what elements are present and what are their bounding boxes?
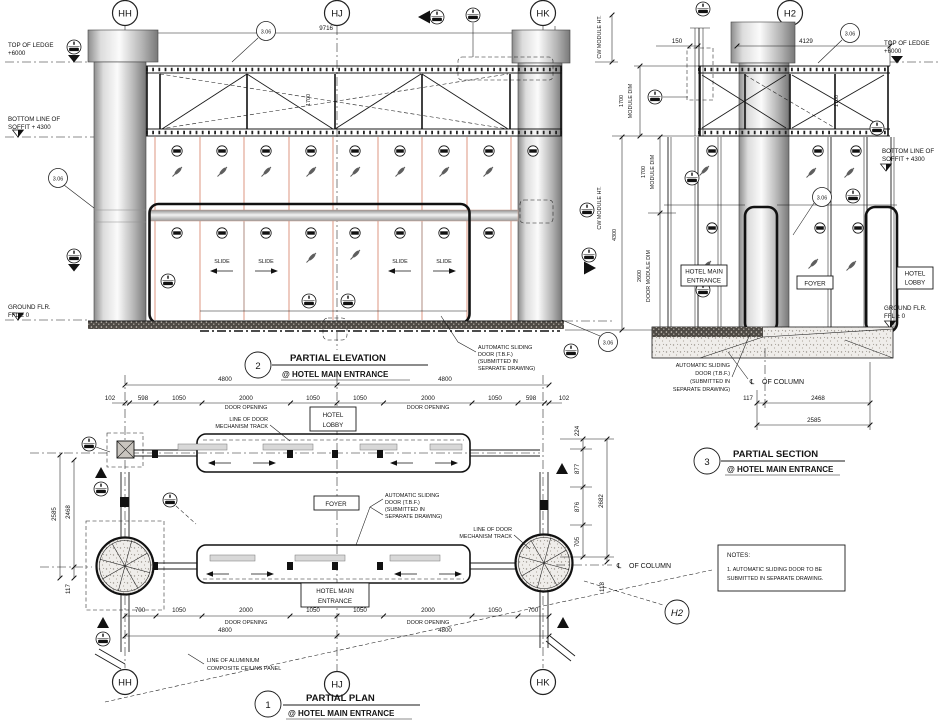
svg-text:2585: 2585: [51, 507, 58, 521]
svg-text:224: 224: [574, 425, 581, 436]
auto-door-note-plan: AUTOMATIC SLIDING DOOR (T.B.F.) (SUBMITT…: [356, 493, 442, 545]
svg-text:AUTOMATIC SLIDING: AUTOMATIC SLIDING: [385, 493, 439, 499]
curtain-wall-elevation: [150, 137, 538, 320]
upper-door-assembly: [130, 434, 540, 472]
svg-text:DOOR (T.B.F.): DOOR (T.B.F.): [478, 352, 513, 358]
keynote-bubble: [341, 294, 355, 308]
svg-text:4129: 4129: [799, 38, 813, 45]
svg-text:BOTTOM LINE OF: BOTTOM LINE OF: [8, 116, 60, 123]
svg-text:2468: 2468: [65, 505, 72, 519]
svg-text:3.06: 3.06: [845, 32, 856, 38]
svg-text:LINE OF DOOR: LINE OF DOOR: [229, 417, 268, 423]
svg-text:℄: ℄: [616, 563, 622, 570]
svg-text:SEPARATE DRAWING): SEPARATE DRAWING): [673, 387, 730, 393]
svg-text:LOBBY: LOBBY: [323, 422, 344, 429]
svg-text:HOTEL: HOTEL: [323, 412, 344, 419]
svg-text:H2: H2: [671, 608, 684, 619]
slide-label: SLIDE: [392, 259, 408, 265]
svg-text:700: 700: [135, 607, 146, 614]
svg-text:1050: 1050: [172, 607, 186, 614]
drawing-canvas: HH HJ HK 9716: [0, 0, 939, 720]
svg-text:2: 2: [255, 361, 260, 372]
notes-line-1: 1. AUTOMATIC SLIDING DOOR TO BE: [727, 567, 823, 573]
svg-text:150: 150: [672, 38, 683, 45]
plan-title: 1 PARTIAL PLAN @ HOTEL MAIN ENTRANCE: [255, 691, 420, 719]
svg-text:HOTEL MAIN: HOTEL MAIN: [685, 269, 723, 276]
dimension-9716: 9716: [123, 25, 558, 42]
svg-text:CW MODULE HT.: CW MODULE HT.: [597, 186, 603, 229]
svg-text:2468: 2468: [811, 395, 825, 402]
top-of-ledge-label: TOP OF LEDGE: [8, 42, 54, 49]
ground-section: [652, 327, 893, 358]
grid-label-hj: HJ: [331, 9, 343, 20]
truss-depth-dim: 1700: [306, 94, 312, 106]
partial-elevation-view: HH HJ HK 9716: [5, 1, 618, 381]
svg-text:PARTIAL PLAN: PARTIAL PLAN: [306, 693, 375, 704]
svg-text:COMPOSITE CEILING PANEL: COMPOSITE CEILING PANEL: [207, 666, 281, 672]
transom-band: [150, 210, 518, 221]
svg-text:HOTEL MAIN: HOTEL MAIN: [316, 588, 354, 595]
svg-text:1050: 1050: [488, 607, 502, 614]
module-dimension-stack: CW MODULE HT. 1700 MODULE DIM CW MODULE …: [565, 13, 700, 333]
grid-label-h2: H2: [784, 9, 796, 20]
svg-text:3.06: 3.06: [261, 30, 272, 36]
svg-text:OF COLUMN: OF COLUMN: [629, 563, 671, 570]
svg-text:2000: 2000: [239, 607, 253, 614]
svg-text:OF COLUMN: OF COLUMN: [762, 379, 804, 386]
keynote-bubble: [302, 294, 316, 308]
svg-text:1700: 1700: [641, 166, 647, 178]
svg-text:DOOR (T.B.F.): DOOR (T.B.F.): [385, 500, 420, 506]
svg-text:ENTRANCE: ENTRANCE: [318, 598, 352, 605]
svg-text:LOBBY: LOBBY: [905, 280, 926, 287]
svg-text:FOYER: FOYER: [804, 281, 826, 288]
svg-text:877: 877: [574, 463, 581, 474]
svg-text:DOOR MODULE DIM: DOOR MODULE DIM: [646, 249, 652, 302]
room-labels-section: HOTEL MAIN ENTRANCE FOYER HOTEL LOBBY: [681, 265, 933, 289]
svg-text:SOFFIT + 4300: SOFFIT + 4300: [882, 156, 925, 163]
svg-text:598: 598: [138, 395, 149, 402]
svg-text:HJ: HJ: [331, 680, 343, 691]
svg-text:AUTOMATIC SLIDING: AUTOMATIC SLIDING: [478, 345, 532, 351]
svg-text:118: 118: [599, 582, 606, 592]
svg-text:@ HOTEL MAIN ENTRANCE: @ HOTEL MAIN ENTRANCE: [727, 465, 834, 474]
svg-text:℄: ℄: [749, 379, 755, 386]
slide-label: SLIDE: [214, 259, 230, 265]
svg-text:CW MODULE HT.: CW MODULE HT.: [597, 15, 603, 58]
room-labels-plan: HOTEL LOBBY FOYER HOTEL MAIN ENTRANCE: [301, 407, 369, 607]
ground-line-elevation: [5, 320, 614, 331]
svg-text:MODULE DIM: MODULE DIM: [650, 154, 656, 189]
svg-text:SEPARATE DRAWING): SEPARATE DRAWING): [478, 366, 535, 372]
svg-text:FOYER: FOYER: [325, 501, 347, 508]
slide-arrow-left: [210, 268, 233, 274]
elevation-title: 2 PARTIAL ELEVATION @ HOTEL MAIN ENTRANC…: [245, 352, 428, 380]
svg-text:(SUBMITTED IN: (SUBMITTED IN: [690, 379, 730, 385]
svg-text:DOOR OPENING: DOOR OPENING: [407, 405, 450, 411]
svg-text:3.06: 3.06: [53, 177, 64, 183]
svg-text:1050: 1050: [172, 395, 186, 402]
section-title: 3 PARTIAL SECTION @ HOTEL MAIN ENTRANCE: [694, 448, 845, 475]
svg-text:HH: HH: [118, 678, 132, 689]
svg-text:DOOR (T.B.F.): DOOR (T.B.F.): [695, 371, 730, 377]
grid-label-hh: HH: [118, 9, 132, 20]
slide-label: SLIDE: [436, 259, 452, 265]
svg-text:4800: 4800: [218, 627, 232, 634]
svg-text:9716: 9716: [319, 25, 333, 32]
slide-arrow-left: [388, 268, 411, 274]
svg-text:2000: 2000: [421, 395, 435, 402]
slide-arrow-right: [255, 268, 278, 274]
svg-text:@ HOTEL MAIN ENTRANCE: @ HOTEL MAIN ENTRANCE: [288, 709, 395, 718]
svg-text:117: 117: [65, 584, 72, 594]
svg-text:4800: 4800: [218, 376, 232, 383]
svg-text:3.06: 3.06: [817, 196, 828, 202]
svg-text:4300: 4300: [612, 229, 618, 241]
svg-text:AUTOMATIC SLIDING: AUTOMATIC SLIDING: [676, 363, 730, 369]
svg-text:117: 117: [743, 395, 753, 402]
svg-text:DOOR OPENING: DOOR OPENING: [225, 405, 268, 411]
svg-text:LINE OF ALUMINIUM: LINE OF ALUMINIUM: [207, 658, 260, 664]
svg-text:1: 1: [265, 700, 270, 711]
svg-text:1050: 1050: [306, 395, 320, 402]
section-cut-flag-right: [584, 262, 596, 275]
track-note-lower: LINE OF DOOR MECHANISM TRACK: [459, 527, 530, 549]
plan-section-markers: [94, 463, 569, 646]
svg-text:3: 3: [704, 457, 709, 468]
svg-text:1700: 1700: [834, 95, 840, 107]
partial-section-view: H2 1700 150: [648, 1, 939, 476]
svg-text:2600: 2600: [637, 270, 643, 282]
svg-text:+6000: +6000: [884, 48, 902, 55]
slide-arrow-right: [433, 268, 456, 274]
svg-text:1050: 1050: [353, 607, 367, 614]
svg-text:DOOR OPENING: DOOR OPENING: [225, 620, 268, 626]
svg-text:TOP OF LEDGE: TOP OF LEDGE: [884, 40, 930, 47]
grid-label-hk: HK: [536, 9, 550, 20]
svg-text:DOOR OPENING: DOOR OPENING: [407, 620, 450, 626]
cad-drawing-sheet: HH HJ HK 9716: [0, 0, 939, 720]
svg-text:4800: 4800: [438, 627, 452, 634]
svg-text:HOTEL: HOTEL: [905, 271, 926, 278]
svg-text:2000: 2000: [421, 607, 435, 614]
svg-text:705: 705: [574, 536, 581, 547]
plan-corner-post: [82, 433, 143, 467]
truss-section: 1700: [698, 66, 890, 136]
svg-text:MECHANISM TRACK: MECHANISM TRACK: [215, 424, 268, 430]
svg-text:HK: HK: [536, 678, 550, 689]
svg-text:1050: 1050: [488, 395, 502, 402]
svg-text:102: 102: [105, 395, 116, 402]
svg-text:2682: 2682: [598, 494, 605, 508]
notes-box: NOTES: 1. AUTOMATIC SLIDING DOOR TO BE S…: [718, 545, 845, 591]
svg-text:BOTTOM LINE OF: BOTTOM LINE OF: [882, 148, 934, 155]
svg-text:PARTIAL ELEVATION: PARTIAL ELEVATION: [290, 353, 386, 364]
fastener-row-upper: [172, 146, 538, 156]
svg-text:ENTRANCE: ENTRANCE: [687, 278, 721, 285]
notes-heading: NOTES:: [727, 552, 750, 559]
svg-text:876: 876: [574, 501, 581, 512]
truss-elevation: 1700: [146, 66, 562, 136]
svg-text:GROUND FLR.: GROUND FLR.: [8, 304, 51, 311]
svg-text:MECHANISM TRACK: MECHANISM TRACK: [459, 534, 512, 540]
svg-text:1050: 1050: [353, 395, 367, 402]
svg-text:2000: 2000: [239, 395, 253, 402]
notes-line-2: SUBMITTED IN SEPARATE DRAWING.: [727, 576, 823, 582]
top-of-ledge-value: +6000: [8, 50, 26, 57]
svg-text:700: 700: [528, 607, 539, 614]
svg-text:4800: 4800: [438, 376, 452, 383]
plan-top-dimensions: 4800 4800 102 598 1050 2000 1050 1050 20…: [105, 376, 570, 411]
svg-text:1050: 1050: [306, 607, 320, 614]
dimensions-section-bottom: 117 2468 2585: [743, 348, 872, 430]
svg-text:1700: 1700: [619, 95, 625, 107]
lower-door-assembly: [130, 545, 540, 583]
plan-left-dimensions: 2585 2468 117: [51, 453, 76, 594]
svg-text:PARTIAL SECTION: PARTIAL SECTION: [733, 449, 818, 460]
partial-plan-view: 4800 4800 102 598 1050 2000 1050 1050 20…: [30, 375, 712, 719]
svg-text:2585: 2585: [807, 417, 821, 424]
svg-text:(SUBMITTED IN: (SUBMITTED IN: [385, 507, 425, 513]
svg-text:598: 598: [526, 395, 537, 402]
ceiling-panel-note: LINE OF ALUMINIUM COMPOSITE CEILING PANE…: [188, 654, 281, 672]
dimension-150: 150: [656, 38, 700, 48]
svg-text:@ HOTEL MAIN ENTRANCE: @ HOTEL MAIN ENTRANCE: [282, 370, 389, 379]
svg-text:3.06: 3.06: [603, 341, 614, 347]
slide-label: SLIDE: [258, 259, 274, 265]
svg-text:SEPARATE DRAWING): SEPARATE DRAWING): [385, 514, 442, 520]
svg-text:(SUBMITTED IN: (SUBMITTED IN: [478, 359, 518, 365]
svg-text:MODULE DIM: MODULE DIM: [628, 83, 634, 118]
track-note-upper: LINE OF DOOR MECHANISM TRACK: [215, 417, 290, 441]
svg-text:102: 102: [559, 395, 570, 402]
keynote-bubble: [161, 274, 175, 288]
svg-text:GROUND FLR.: GROUND FLR.: [884, 305, 927, 312]
svg-text:LINE OF DOOR: LINE OF DOOR: [473, 527, 512, 533]
svg-text:FFL ± 0: FFL ± 0: [884, 313, 906, 320]
